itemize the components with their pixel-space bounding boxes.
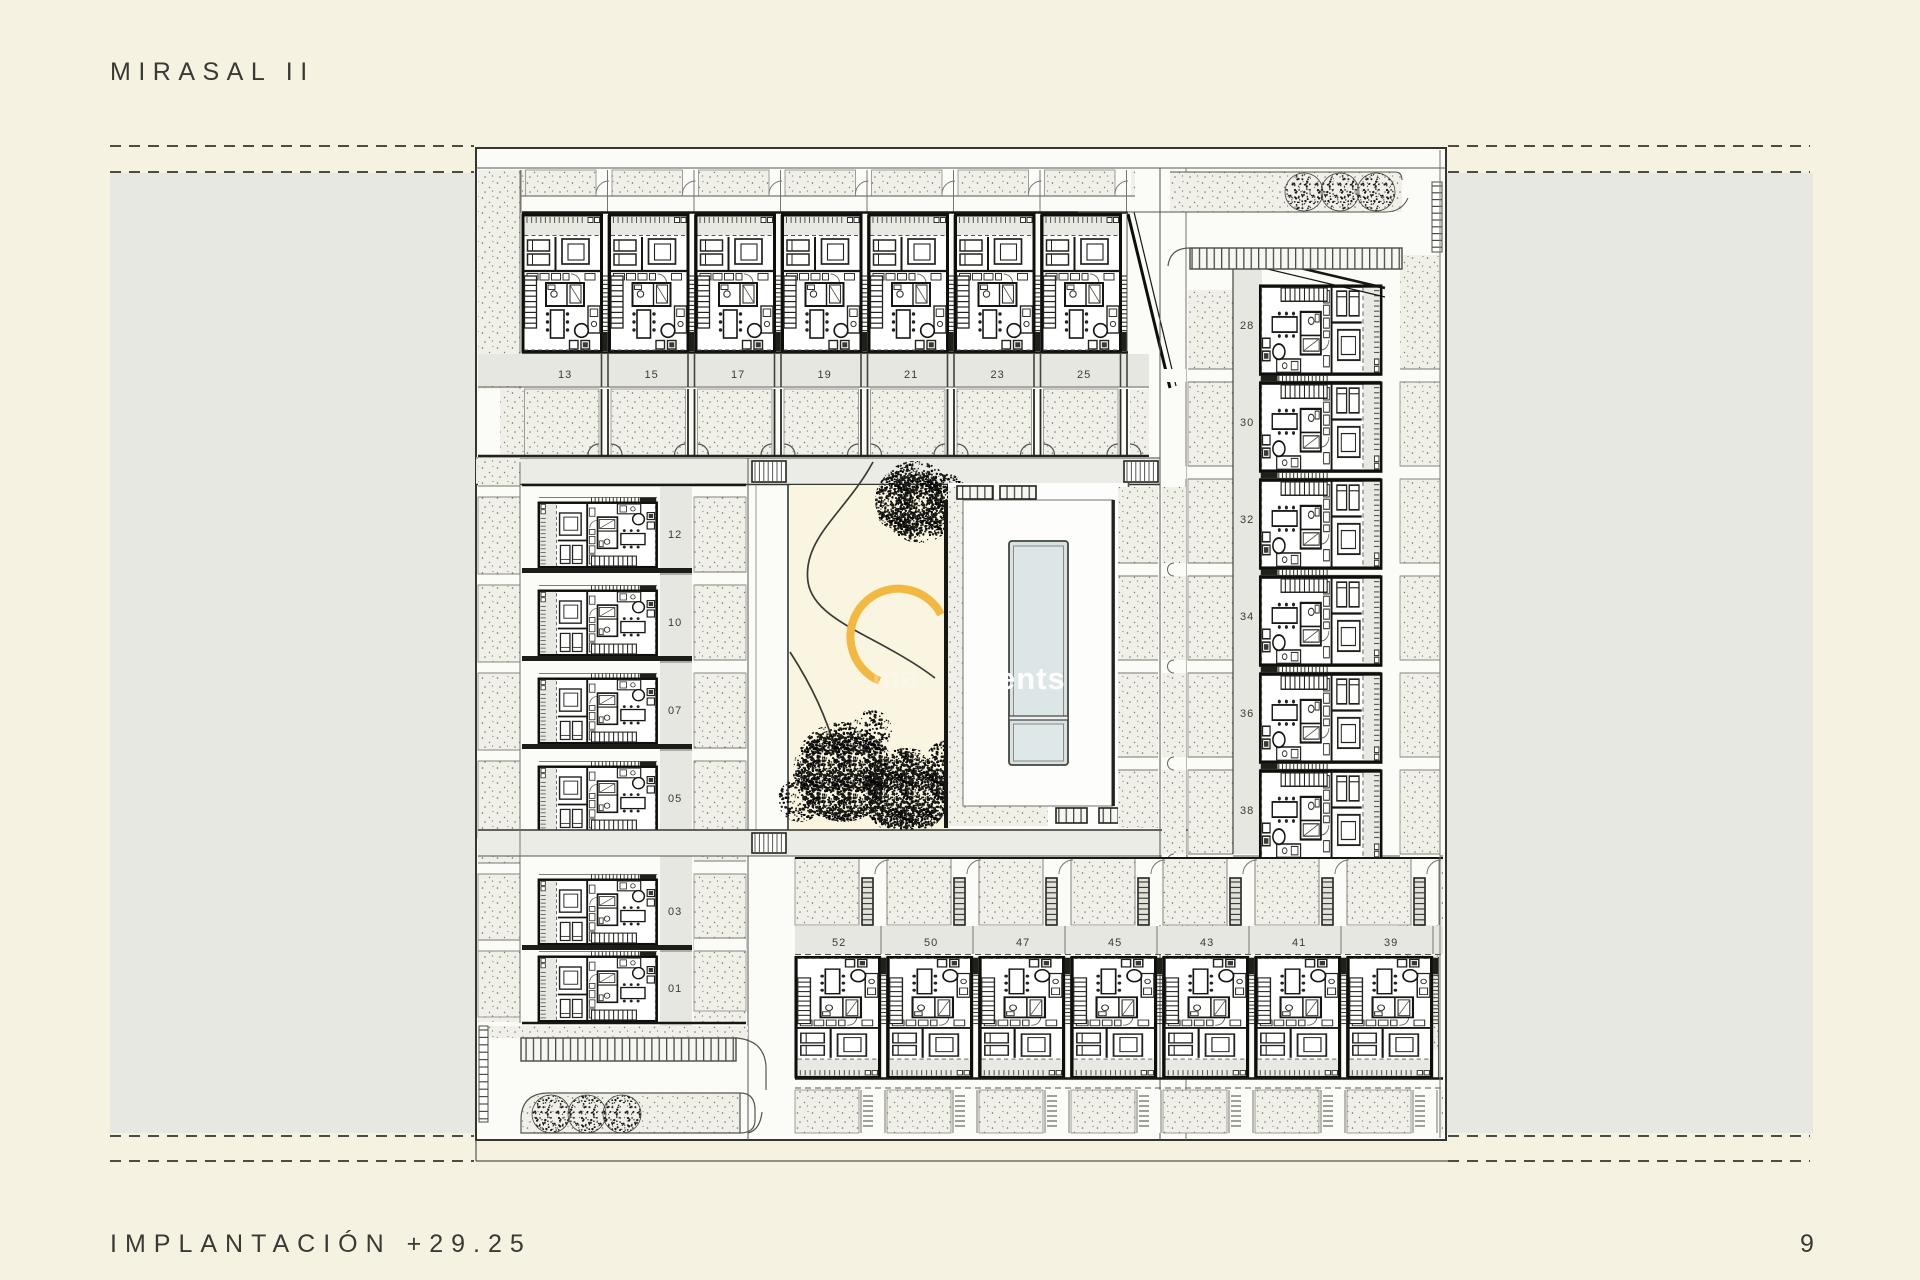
svg-text:39: 39	[1384, 937, 1398, 949]
svg-text:30: 30	[1240, 417, 1254, 429]
svg-text:17: 17	[731, 369, 745, 381]
svg-text:38: 38	[1240, 805, 1254, 817]
svg-text:23: 23	[991, 369, 1005, 381]
svg-text:19: 19	[818, 369, 832, 381]
svg-text:9: 9	[1800, 1230, 1814, 1258]
svg-text:13: 13	[558, 369, 572, 381]
svg-text:12: 12	[668, 529, 682, 541]
svg-text:28: 28	[1240, 320, 1254, 332]
svg-text:50: 50	[924, 937, 938, 949]
svg-text:MIRASAL II: MIRASAL II	[110, 58, 315, 86]
svg-text:IMPLANTACIÓN +29.25: IMPLANTACIÓN +29.25	[110, 1229, 532, 1258]
svg-text:43: 43	[1200, 937, 1214, 949]
svg-text:34: 34	[1240, 611, 1254, 623]
svg-text:10: 10	[668, 617, 682, 629]
svg-text:32: 32	[1240, 514, 1254, 526]
svg-text:01: 01	[668, 983, 682, 995]
svg-text:45: 45	[1108, 937, 1122, 949]
svg-text:41: 41	[1292, 937, 1306, 949]
svg-text:15: 15	[645, 369, 659, 381]
svg-text:25: 25	[1077, 369, 1091, 381]
svg-text:52: 52	[832, 937, 846, 949]
svg-text:ents: ents	[998, 661, 1066, 696]
svg-text:03: 03	[668, 906, 682, 918]
svg-text:21: 21	[904, 369, 918, 381]
svg-text:me: me	[872, 660, 919, 695]
svg-text:05: 05	[668, 793, 682, 805]
svg-text:36: 36	[1240, 708, 1254, 720]
svg-text:47: 47	[1016, 937, 1030, 949]
svg-text:07: 07	[668, 705, 682, 717]
